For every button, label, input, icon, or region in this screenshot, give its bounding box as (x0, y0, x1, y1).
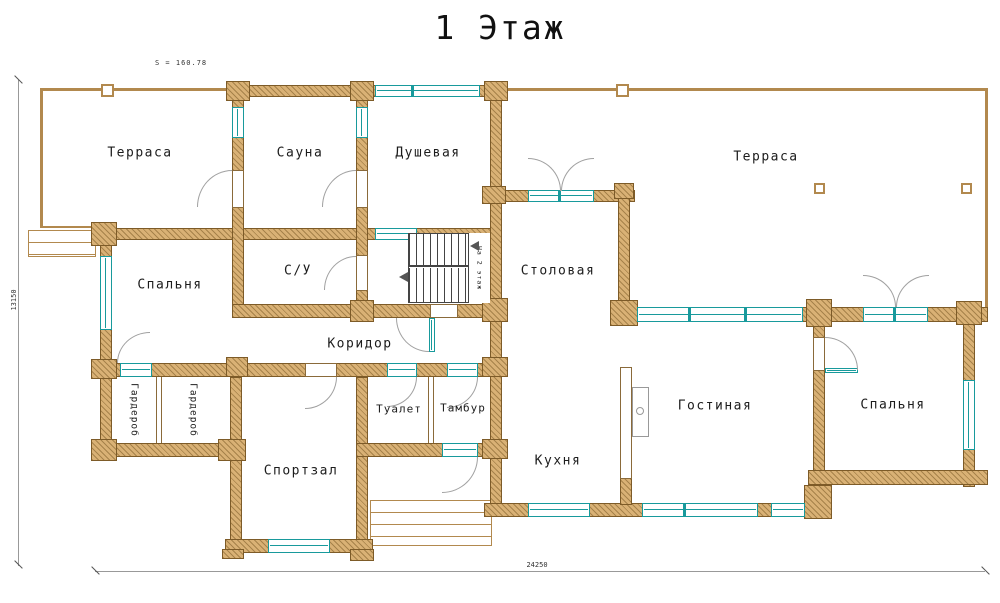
window-mullion (411, 86, 414, 96)
door-leaf (429, 318, 435, 352)
wall-post (226, 357, 248, 377)
wall-post (804, 485, 832, 519)
glazed-door (387, 363, 417, 377)
room-label-gym: Спортзал (264, 464, 339, 479)
window (375, 85, 480, 97)
glazed-door (120, 363, 152, 377)
window (356, 107, 368, 138)
room-label-toilet: Туалет (376, 403, 422, 416)
room-label-wc: С/У (284, 264, 312, 279)
window-mullion (558, 191, 561, 201)
door-swing-arc (324, 256, 356, 290)
terrace-wall (985, 88, 988, 310)
room-label-wardrobe-1: Гардероб (129, 383, 140, 437)
window-mullion (893, 308, 896, 321)
floor-plan: 1 Этаж S = 160.78 (0, 0, 1000, 603)
partition (428, 377, 434, 443)
terrace-post (101, 84, 114, 97)
wall (356, 377, 368, 555)
door-swing-arc (322, 170, 356, 207)
dimension-label: 13150 (10, 289, 18, 310)
fireplace-flue (636, 407, 644, 415)
window (963, 380, 975, 450)
room-label-vestibule: Тамбур (440, 402, 486, 415)
wall-post (91, 439, 117, 461)
door-swing-arc (561, 158, 594, 191)
stairs-treads (409, 234, 469, 266)
door-swing-arc (117, 332, 150, 363)
glazed-double-door (528, 190, 594, 202)
door-opening (232, 170, 244, 208)
door-swing-arc (305, 377, 337, 409)
stairs-direction-arrow-icon (399, 272, 408, 282)
terrace-post (616, 84, 629, 97)
wall-post (482, 357, 508, 377)
glazed-door (447, 363, 478, 377)
room-label-wardrobe-2: Гардероб (188, 383, 199, 437)
partition (156, 377, 162, 443)
window (637, 307, 803, 322)
room-label-bedroom-left: Спальня (137, 278, 202, 293)
terrace-post (961, 183, 972, 194)
door-opening (356, 170, 368, 208)
wall-post (226, 81, 250, 101)
window-mullion (744, 308, 747, 321)
door-swing-arc (863, 275, 896, 307)
wall-post (956, 301, 982, 325)
floor-plan-title: 1 Этаж (434, 8, 565, 47)
wall-post (91, 359, 117, 379)
steps (370, 500, 492, 546)
window (771, 503, 805, 517)
wall-post (482, 439, 508, 459)
room-label-dining: Столовая (521, 264, 596, 279)
wall (95, 363, 502, 377)
wall-post (350, 81, 374, 101)
door-swing-arc (396, 318, 429, 352)
room-label-terrace-left: Терраса (107, 146, 172, 161)
wall (230, 377, 242, 553)
room-label-terrace-right: Терраса (733, 150, 798, 165)
door-opening (813, 337, 825, 371)
stairs-treads (409, 268, 469, 302)
door-swing-arc (197, 170, 232, 207)
terrace-wall (40, 88, 238, 91)
window (232, 107, 244, 138)
wall-post (614, 183, 634, 199)
area-label: S = 160.78 (155, 59, 207, 67)
wall-post (222, 549, 244, 559)
door-swing-arc (896, 275, 929, 307)
door-opening (430, 304, 458, 318)
window-mullion (683, 504, 686, 516)
room-label-bedroom-right: Спальня (860, 398, 925, 413)
room-label-living: Гостиная (678, 399, 753, 414)
wall-post (806, 299, 832, 327)
door-swing-arc (528, 158, 561, 191)
terrace-wall (40, 88, 43, 228)
stairs-direction-label: На 2 этаж (476, 246, 484, 290)
dimension-line (18, 80, 19, 566)
room-label-corridor: Коридор (327, 337, 392, 352)
wall-post (350, 549, 374, 561)
wall-post (218, 439, 246, 461)
door-swing-arc (442, 457, 478, 493)
window-mullion (688, 308, 691, 321)
wall (620, 478, 632, 505)
terrace-post (814, 183, 825, 194)
stairs-direction-arrow-icon (470, 241, 479, 251)
wall-post (482, 186, 506, 204)
wall (356, 443, 502, 457)
door-opening (356, 255, 368, 291)
dimension-label: 24250 (526, 561, 547, 569)
window (642, 503, 758, 517)
room-label-shower: Душевая (395, 146, 460, 161)
terrace-wall (42, 226, 98, 228)
room-label-sauna: Сауна (277, 146, 324, 161)
wall-post (91, 222, 117, 246)
wall-post (610, 300, 638, 326)
wall-post (484, 81, 508, 101)
steps (28, 230, 96, 257)
room-label-kitchen: Кухня (535, 454, 582, 469)
window (100, 256, 112, 330)
wall-post (350, 300, 374, 322)
door-opening (305, 363, 337, 377)
dimension-line (95, 571, 985, 572)
glazed-door (442, 443, 478, 457)
partition (620, 367, 632, 479)
wall (808, 470, 988, 485)
window (528, 503, 590, 517)
door-swing-arc (825, 337, 858, 370)
wall (813, 303, 825, 487)
window (268, 539, 330, 553)
terrace-wall (502, 88, 988, 91)
